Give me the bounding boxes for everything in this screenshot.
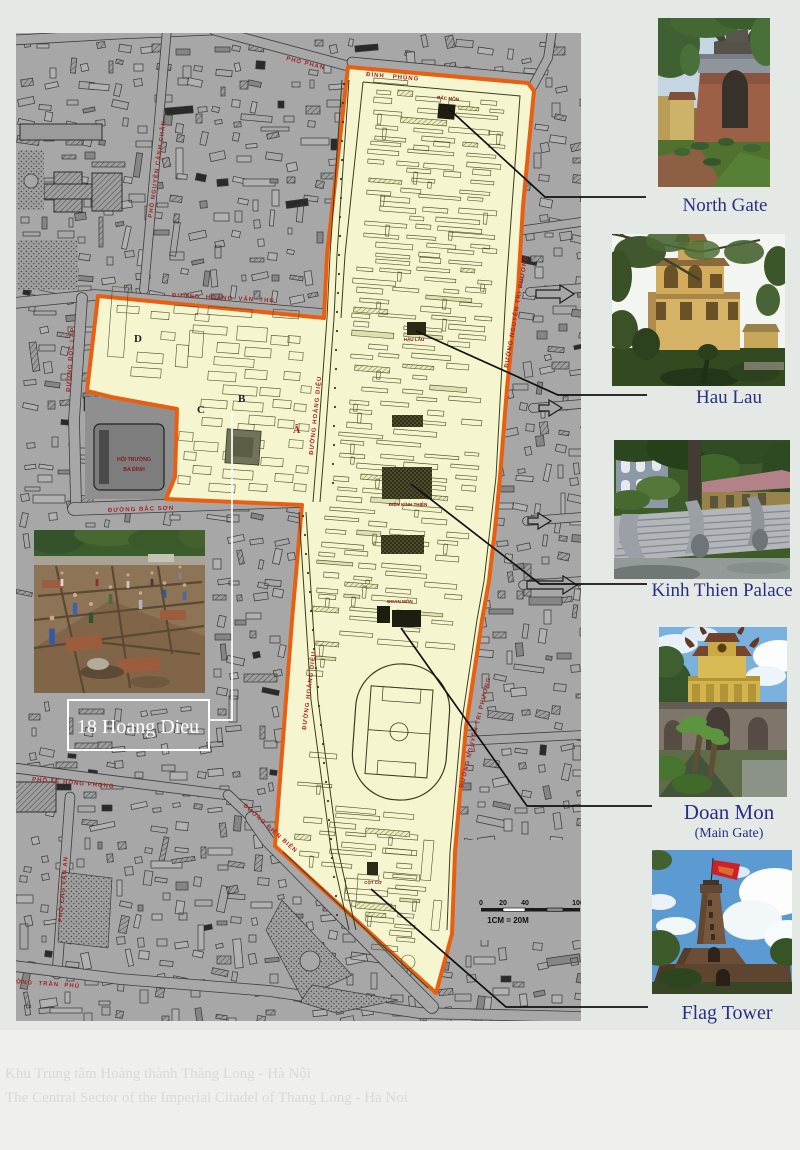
svg-text:C: C	[197, 404, 205, 416]
svg-text:CỘT CỜ: CỘT CỜ	[364, 880, 382, 885]
svg-text:ĐIỆN KÍNH THIÊN: ĐIỆN KÍNH THIÊN	[389, 500, 428, 507]
svg-text:20: 20	[499, 900, 507, 907]
svg-text:Flag Tower: Flag Tower	[682, 1002, 773, 1024]
svg-text:Doan Mon: Doan Mon	[684, 800, 775, 824]
svg-text:HỘI TRƯỜNG: HỘI TRƯỜNG	[117, 455, 151, 463]
svg-text:Kinh Thien Palace: Kinh Thien Palace	[651, 580, 792, 601]
svg-text:HẬU LÂU: HẬU LÂU	[404, 336, 425, 342]
svg-text:The Central Sector of the Impe: The Central Sector of the Imperial Citad…	[5, 1090, 408, 1106]
svg-text:Hau Lau: Hau Lau	[696, 387, 762, 408]
svg-text:18 Hoang Dieu: 18 Hoang Dieu	[77, 716, 199, 738]
svg-text:0: 0	[479, 900, 483, 907]
svg-text:40: 40	[521, 900, 529, 907]
svg-text:(Main Gate): (Main Gate)	[695, 826, 764, 841]
svg-text:D: D	[134, 333, 142, 345]
svg-text:North Gate: North Gate	[683, 195, 768, 216]
svg-text:ĐOAN MÔN: ĐOAN MÔN	[387, 597, 413, 604]
svg-text:Khu Trung tâm Hoàng thành Thăn: Khu Trung tâm Hoàng thành Thăng Long - H…	[5, 1066, 311, 1082]
svg-text:BA ĐÌNH: BA ĐÌNH	[123, 465, 145, 473]
svg-text:1CM = 20M: 1CM = 20M	[487, 916, 529, 925]
svg-text:Ấ: Ấ	[293, 423, 301, 436]
svg-text:B: B	[238, 393, 246, 405]
